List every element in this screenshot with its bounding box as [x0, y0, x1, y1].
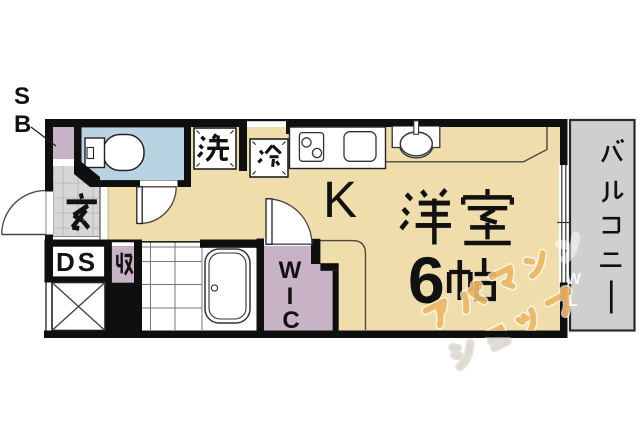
svg-text:DS: DS — [56, 247, 98, 277]
svg-text:I: I — [287, 283, 294, 310]
svg-text:C: C — [282, 307, 299, 334]
svg-text:L: L — [568, 293, 578, 310]
svg-text:B: B — [14, 111, 31, 138]
svg-text:W: W — [279, 257, 302, 284]
svg-text:S: S — [14, 83, 30, 110]
svg-text:K: K — [323, 171, 357, 228]
svg-text:W: W — [566, 271, 582, 288]
